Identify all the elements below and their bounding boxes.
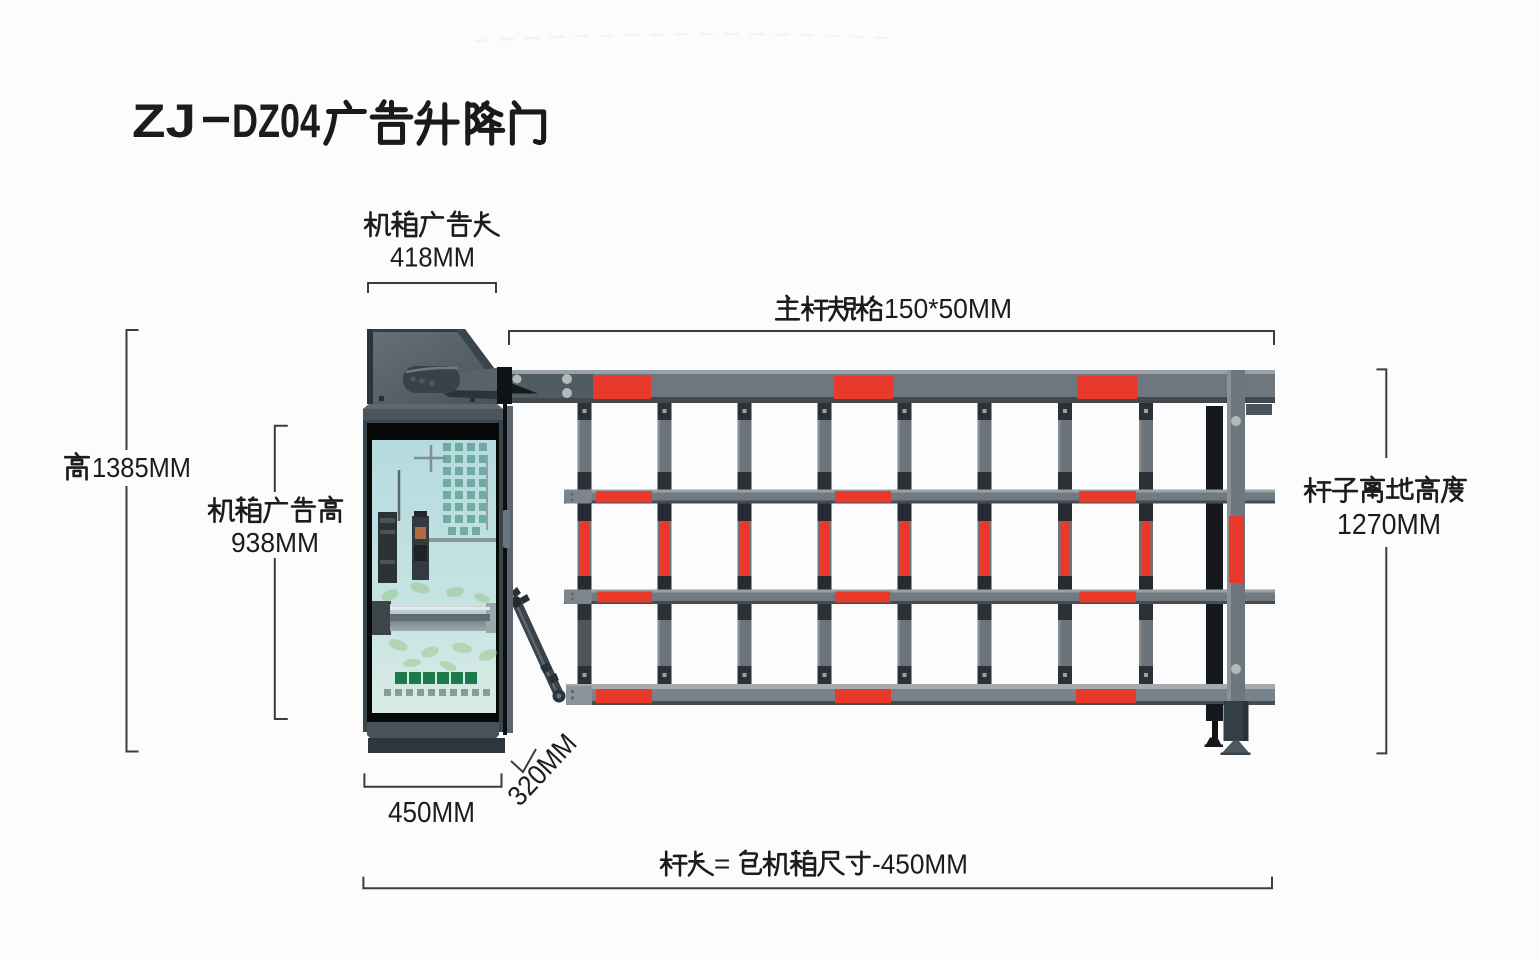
svg-text:938MM: 938MM	[231, 527, 319, 558]
svg-text:-450MM: -450MM	[872, 849, 968, 880]
svg-text:ZJ: ZJ	[132, 94, 196, 147]
svg-text:150*50MM: 150*50MM	[884, 293, 1012, 324]
svg-text:450MM: 450MM	[388, 797, 475, 829]
svg-text:=: =	[714, 848, 730, 879]
svg-text:DZ04: DZ04	[232, 94, 320, 147]
svg-text:1270MM: 1270MM	[1337, 509, 1441, 541]
svg-text:418MM: 418MM	[390, 242, 475, 273]
svg-text:1385MM: 1385MM	[92, 452, 191, 483]
